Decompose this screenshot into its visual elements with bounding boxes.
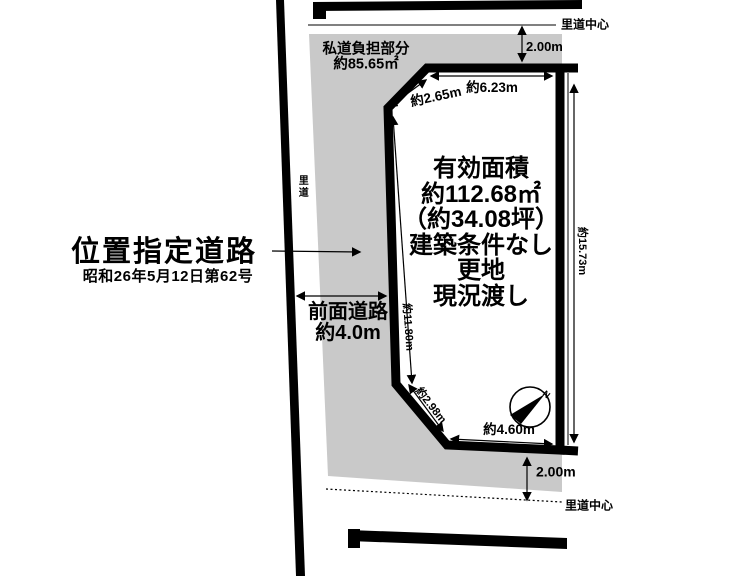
parcel-line-vacant-lot: 更地 — [403, 258, 559, 284]
site-plan-drawing — [0, 0, 730, 576]
road-left — [276, 0, 305, 576]
parcel-line-as-is: 現況渡し — [403, 284, 559, 310]
front-road-name: 前面道路 — [308, 301, 388, 323]
site-plan-diagram: 位置指定道路 昭和26年5月12日第62号 前面道路 約4.0m 私道負担部分 … — [0, 0, 730, 576]
satomichi-center-top-label: 里道中心 — [561, 19, 609, 32]
parcel-line-area-tsubo: （約34.08坪） — [403, 207, 559, 233]
parcel-description: 有効面積 約112.68㎡ （約34.08坪） 建築条件なし 更地 現況渡し — [403, 156, 559, 309]
road-designation-date: 昭和26年5月12日第62号 — [83, 269, 253, 285]
dimension-right-edge-label: 約15.73m — [575, 227, 587, 275]
parcel-line-area-sqm: 約112.68㎡ — [403, 182, 559, 208]
front-road-label: 前面道路 約4.0m — [308, 302, 388, 344]
dimension-top-edge-label: 約6.23m — [466, 81, 518, 95]
parcel-line-no-building-conditions: 建築条件なし — [403, 233, 559, 259]
road-designation-title: 位置指定道路 — [71, 237, 257, 267]
offset-top-label: 2.00m — [526, 40, 563, 54]
dimension-bottom-edge-label: 約4.60m — [483, 423, 535, 437]
road-bottom — [348, 529, 567, 549]
satomichi-label: 里道 — [296, 175, 307, 199]
private-road-label: 私道負担部分 約85.65㎡ — [323, 43, 410, 72]
satomichi-center-bottom-label: 里道中心 — [565, 500, 613, 513]
dimension-left-edge-label: 約11.80m — [400, 303, 415, 351]
offset-bottom-label: 2.00m — [536, 465, 576, 480]
front-road-width: 約4.0m — [315, 322, 381, 344]
private-road-area-value: 約85.65㎡ — [333, 56, 398, 72]
road-top — [313, 0, 582, 19]
parcel-line-effective-area: 有効面積 — [403, 156, 559, 182]
